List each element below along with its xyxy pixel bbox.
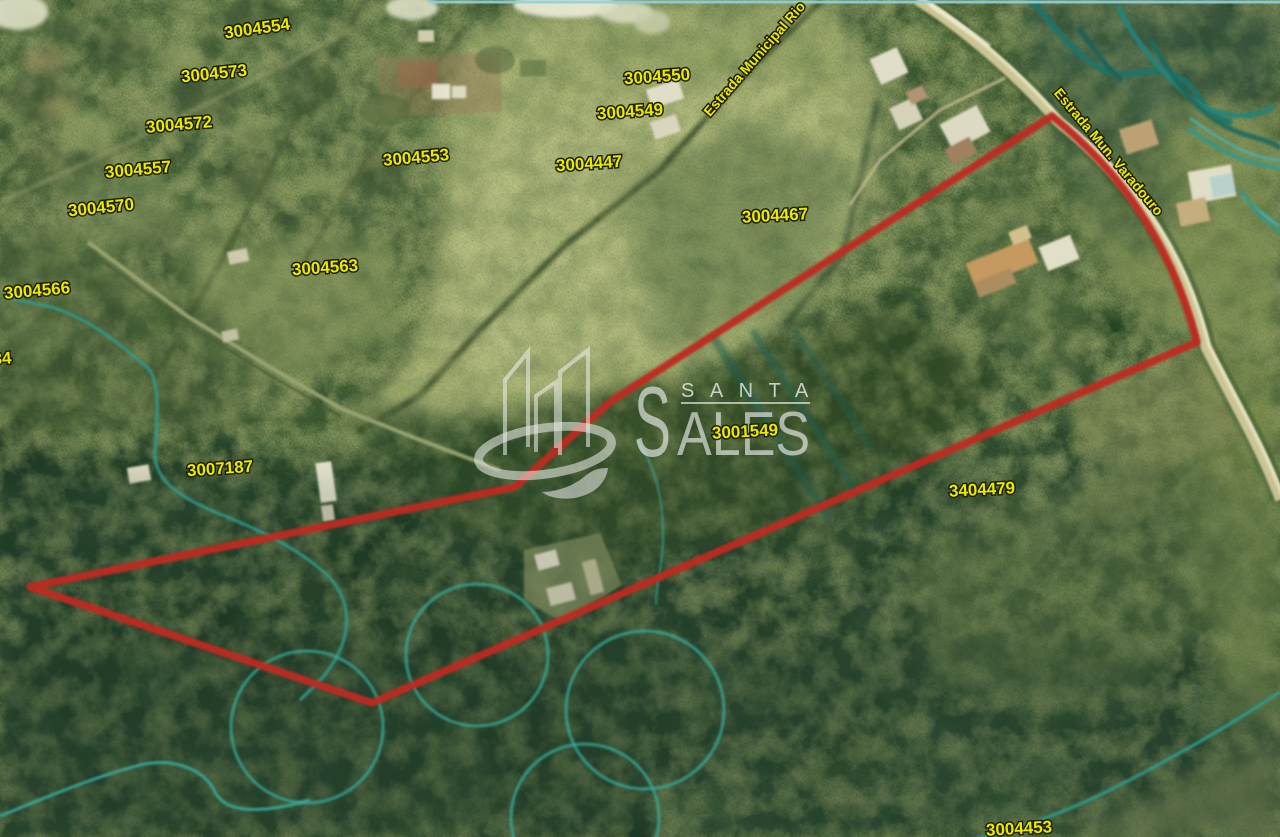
svg-text:3404479: 3404479 — [948, 478, 1015, 500]
svg-text:3001549: 3001549 — [711, 420, 778, 442]
svg-text:3004453: 3004453 — [985, 817, 1052, 837]
svg-text:34: 34 — [0, 348, 13, 368]
svg-text:SANTA: SANTA — [681, 380, 824, 402]
svg-text:3004467: 3004467 — [741, 204, 808, 226]
svg-text:S: S — [634, 367, 671, 478]
